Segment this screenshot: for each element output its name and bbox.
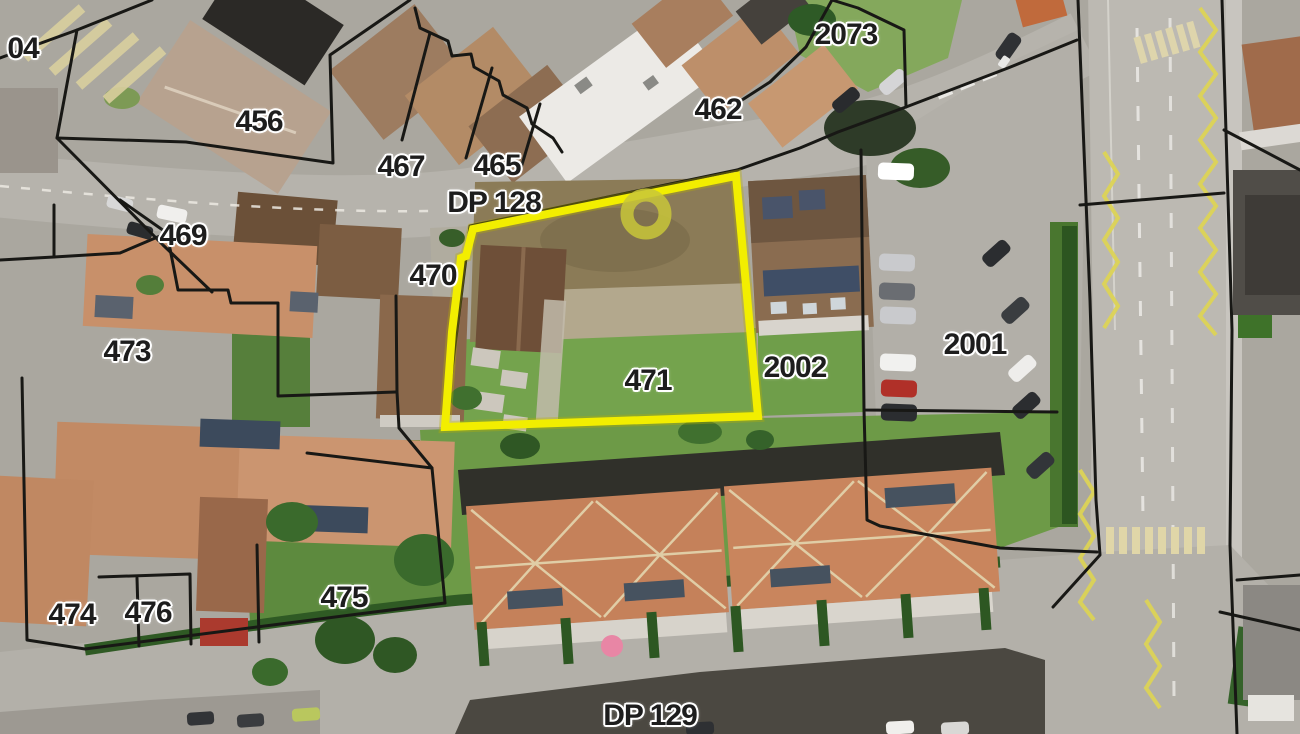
- building-dark-east: [1233, 170, 1300, 315]
- tree: [439, 229, 465, 247]
- car: [686, 721, 715, 734]
- map-canvas[interactable]: 04456467465DP 12846220734694704734712002…: [0, 0, 1300, 734]
- tree: [136, 275, 164, 295]
- tree: [252, 658, 288, 686]
- roof-469b: [316, 224, 402, 300]
- hedge-road: [1062, 226, 1077, 524]
- tree: [500, 433, 540, 459]
- townhouse-block-1: [466, 488, 730, 649]
- car: [941, 721, 970, 734]
- car: [237, 713, 265, 728]
- car: [886, 720, 915, 734]
- lawn-parcel-2002: [758, 330, 864, 416]
- tree: [266, 502, 318, 542]
- tree: [394, 534, 454, 586]
- roof-brown-topright: [1242, 36, 1300, 138]
- roof-gray-left: [0, 88, 58, 173]
- building-east-bottom-white: [1248, 695, 1294, 721]
- building-2002: [748, 175, 874, 336]
- tree: [450, 386, 482, 410]
- tree: [373, 637, 417, 673]
- tree: [315, 616, 375, 664]
- roof-474: [0, 476, 94, 627]
- townhouse-block-2: [724, 468, 1001, 630]
- pink-pool: [601, 635, 623, 657]
- tree: [746, 430, 774, 450]
- car: [187, 711, 215, 726]
- building-east-bottom: [1243, 585, 1300, 700]
- dirt-light-471: [540, 283, 752, 340]
- car: [292, 707, 321, 722]
